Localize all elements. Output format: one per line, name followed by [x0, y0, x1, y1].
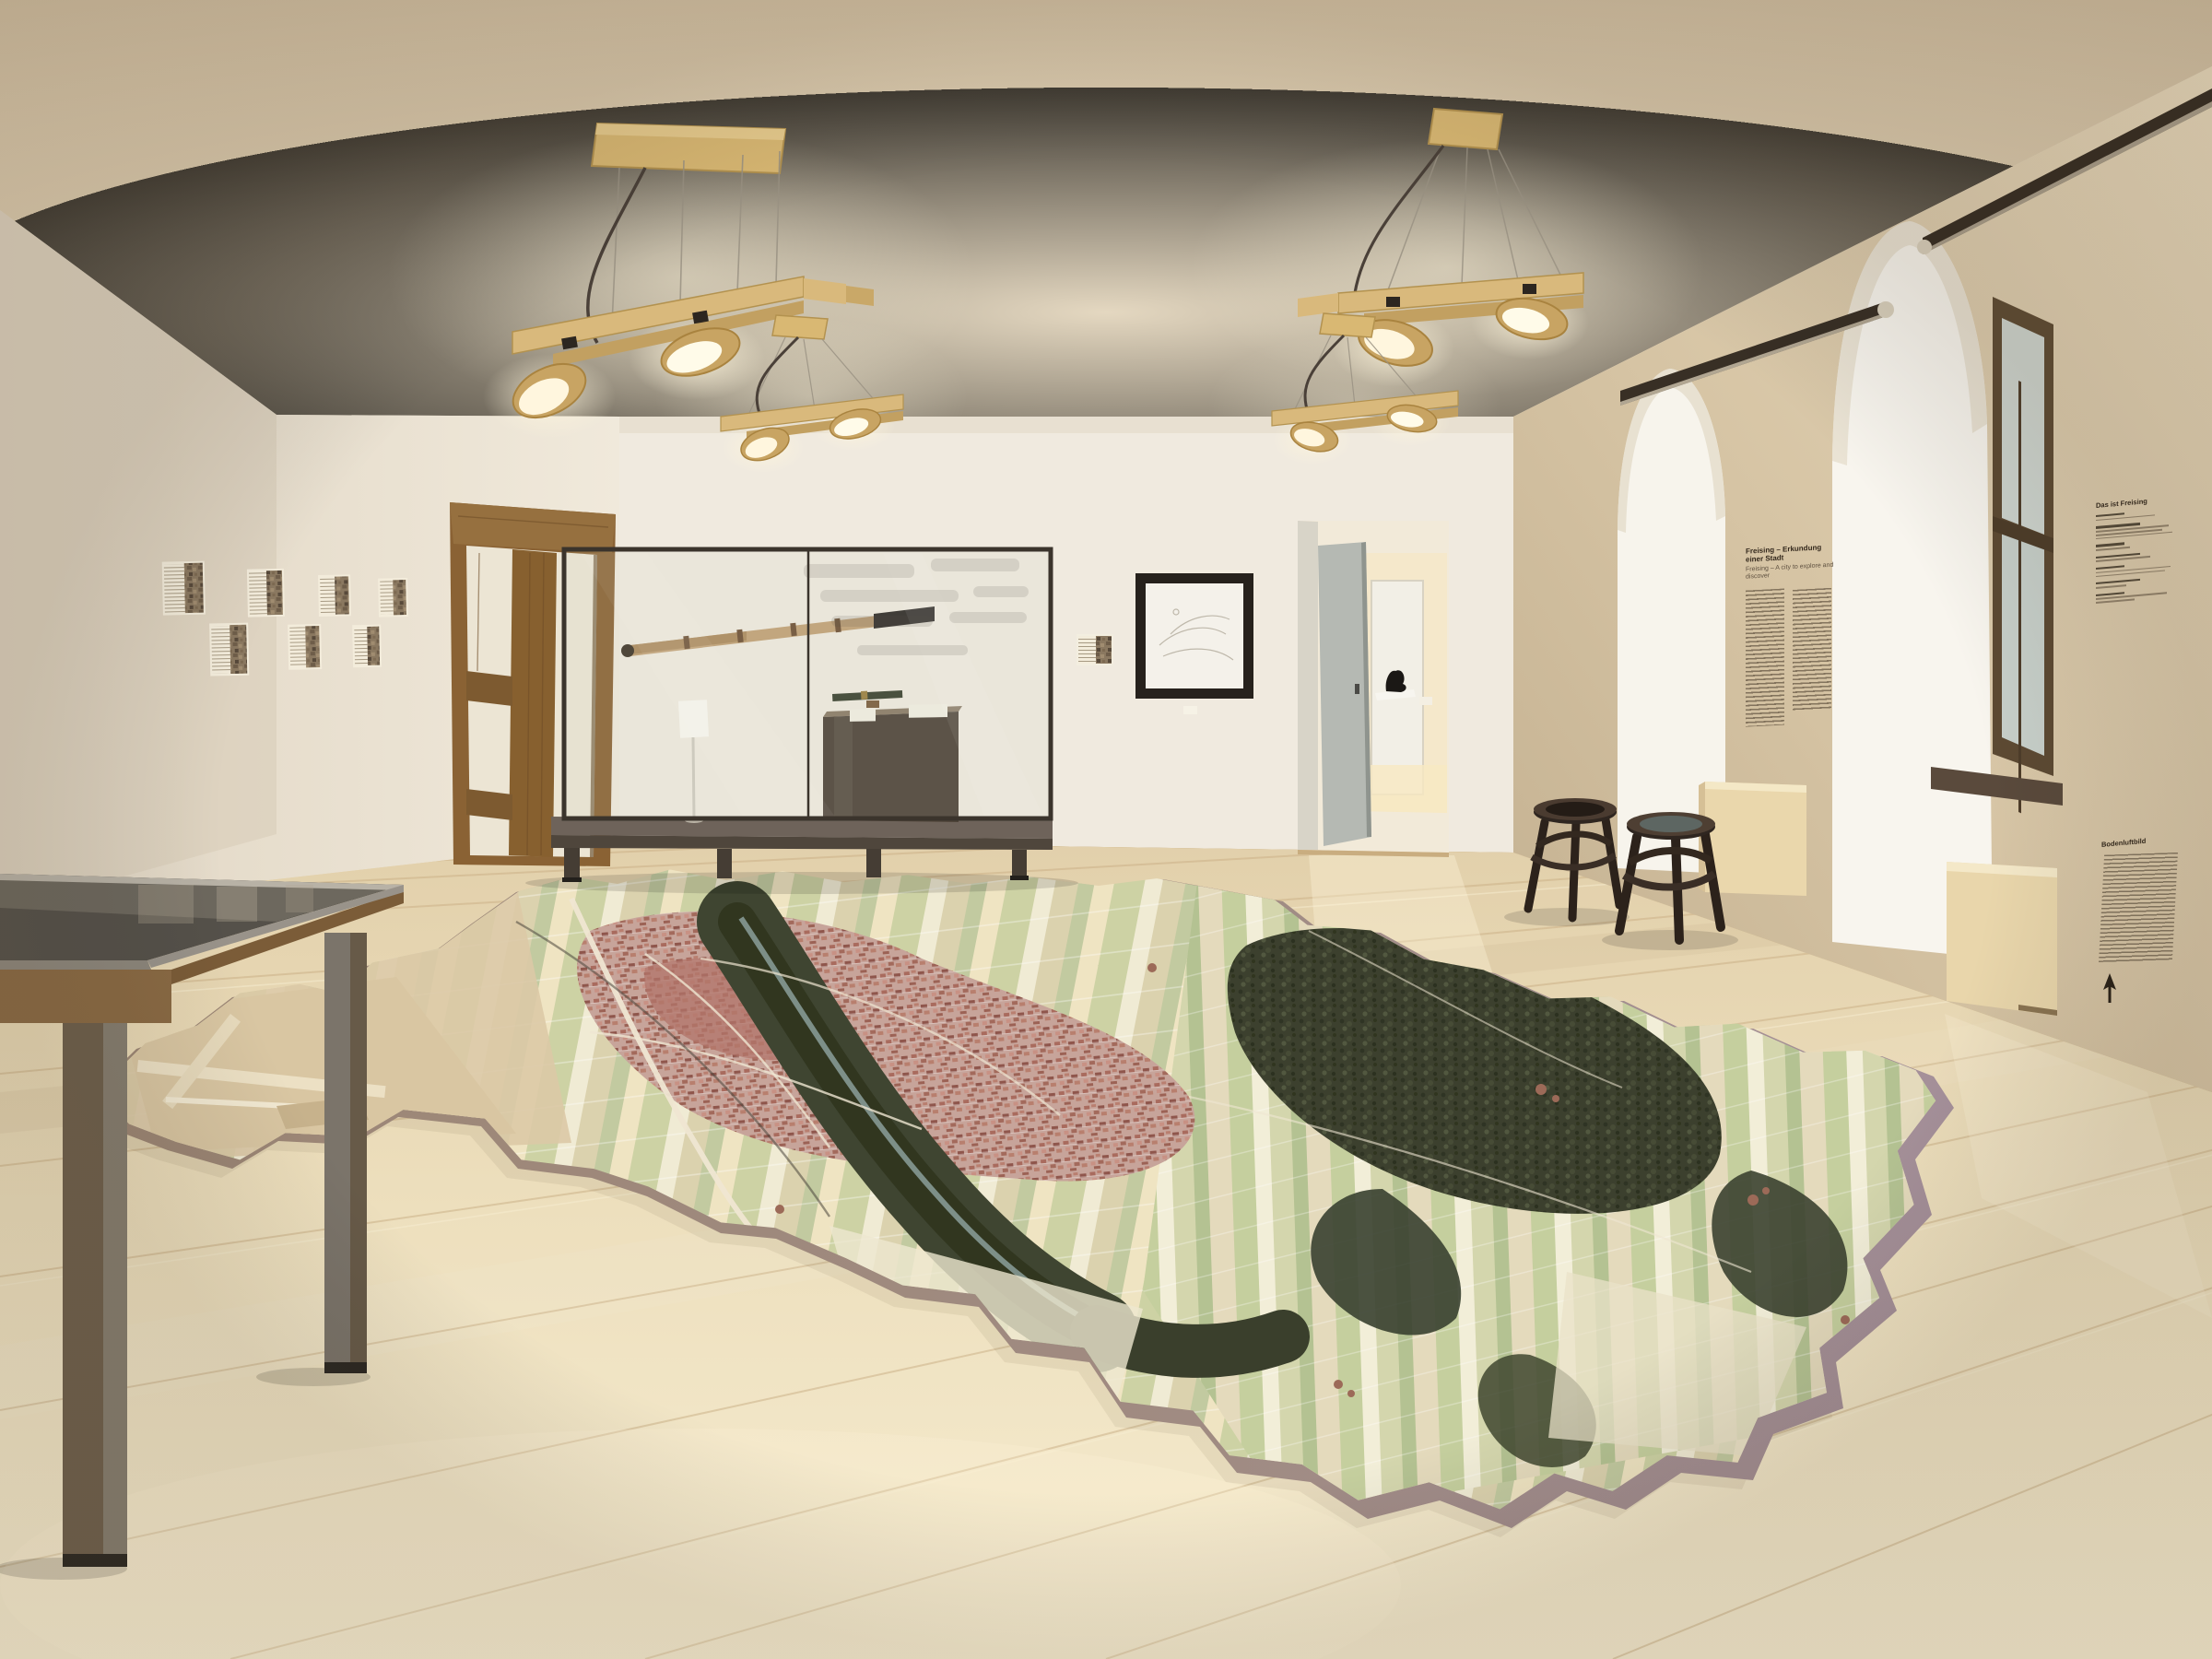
wall-panel-city-text: Freising – Erkundung einer Stadt Freisin…: [1746, 543, 1840, 727]
wall-panel-aerial: Bodenluftbild: [2101, 833, 2184, 964]
facts-list: [2096, 508, 2181, 604]
panel-body-columns: [1746, 586, 1840, 727]
exhibition-room-photo: Freising – Erkundung einer Stadt Freisin…: [0, 0, 2212, 1659]
text-column: [1746, 589, 1784, 727]
photo-vignette: [0, 0, 2212, 1659]
panel-title-en: Freising – A city to explore and discove…: [1746, 561, 1840, 581]
aerial-paragraph: [2099, 853, 2178, 962]
text-column: [1793, 588, 1831, 712]
room-scene: [0, 0, 2212, 1659]
wall-panel-facts: Das ist Freising: [2096, 494, 2181, 606]
